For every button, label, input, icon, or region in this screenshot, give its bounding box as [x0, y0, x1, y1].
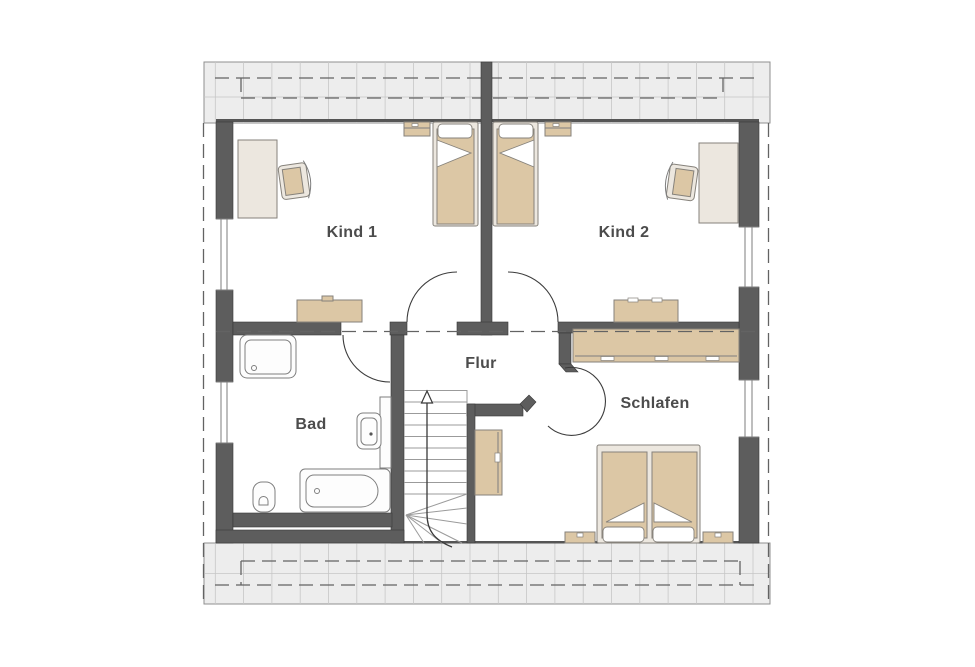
room-label-kind1: Kind 1: [327, 224, 378, 241]
exterior-wall-left: [216, 122, 233, 219]
room-label-flur: Flur: [465, 355, 496, 372]
schlafen-door-jamb: [559, 333, 571, 364]
shower: [240, 335, 296, 378]
window-kind2: [739, 227, 759, 287]
nightstand-left: [565, 532, 595, 543]
exterior-wall-right: [739, 122, 759, 227]
sink: [357, 413, 381, 449]
shelf-kind2: [545, 122, 571, 136]
bed-kind2: [493, 122, 538, 226]
cabinet-flur: [475, 430, 502, 495]
room-kind1-furniture: [238, 122, 478, 322]
dresser-kind1: [297, 296, 362, 322]
room-label-bad: Bad: [295, 416, 326, 433]
room-label-schlafen: Schlafen: [620, 395, 689, 412]
double-bed-schlafen: [597, 445, 700, 543]
wall-bad-stairs: [391, 335, 404, 543]
window-schlafen: [739, 380, 759, 437]
wall-stairs-schlafen: [467, 404, 475, 543]
shelf-kind1: [404, 122, 430, 136]
room-label-kind2: Kind 2: [599, 224, 650, 241]
room-kind2-furniture: [493, 122, 738, 322]
door-swing-kind2: [508, 272, 558, 322]
stairs: [404, 390, 467, 547]
floor-plan-drawing: Kind 1 Kind 2 Flur Bad Schlafen: [0, 0, 975, 667]
bathtub: [300, 469, 390, 512]
roof-overhang-bottom: [204, 543, 770, 604]
room-schlafen-furniture: [565, 329, 739, 543]
window-bad: [216, 382, 233, 443]
floor-plan-page: Kind 1 Kind 2 Flur Bad Schlafen: [0, 0, 975, 667]
room-flur-furniture: [475, 430, 502, 495]
wall-kind1-kind2: [481, 62, 492, 335]
toilet: [253, 482, 275, 512]
desk-kind1: [238, 140, 277, 218]
door-swing-schlafen: [548, 367, 605, 435]
bed-kind1: [433, 122, 478, 226]
corridor-wall: [233, 322, 341, 335]
window-kind1: [216, 219, 233, 290]
door-swing-bad: [343, 335, 390, 382]
nightstand-right: [703, 532, 733, 543]
chair-kind1: [278, 160, 313, 202]
door-swing-kind1: [407, 272, 457, 322]
desk-kind2: [699, 143, 738, 223]
chair-kind2: [663, 161, 698, 203]
bad-south-wall: [233, 513, 392, 527]
bath-vanity: [380, 397, 391, 468]
wardrobe-schlafen: [573, 329, 739, 362]
stair-up-arrow-icon: [422, 391, 433, 403]
dresser-kind2: [614, 298, 678, 322]
flur-schlafen-wall: [467, 404, 523, 416]
stair-walk-line: [427, 402, 452, 547]
winder-steps: [406, 494, 467, 543]
